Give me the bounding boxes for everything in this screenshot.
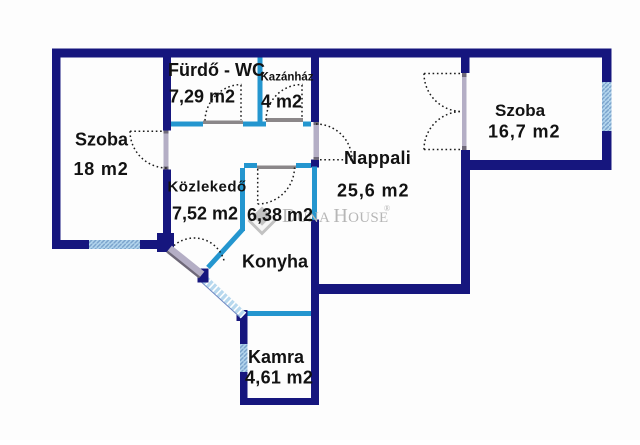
svg-text:18 m2: 18 m2	[74, 159, 129, 179]
svg-text:Konyha: Konyha	[242, 252, 309, 272]
svg-text:Nappali: Nappali	[344, 148, 411, 168]
svg-text:4,61 m2: 4,61 m2	[245, 368, 313, 388]
svg-text:6,38 m2: 6,38 m2	[247, 205, 313, 225]
svg-text:7,29 m2: 7,29 m2	[169, 87, 235, 107]
svg-text:Szoba: Szoba	[75, 130, 129, 150]
svg-text:16,7 m2: 16,7 m2	[488, 122, 560, 142]
svg-text:Kazánház: Kazánház	[261, 72, 314, 84]
svg-text:Kamra: Kamra	[248, 347, 305, 367]
svg-text:Fürdő - WC: Fürdő - WC	[168, 60, 265, 80]
svg-text:Közlekedő: Közlekedő	[168, 179, 247, 196]
svg-text:25,6 m2: 25,6 m2	[337, 181, 409, 201]
svg-text:4 m2: 4 m2	[261, 92, 302, 112]
svg-text:®: ®	[384, 204, 390, 213]
svg-text:7,52 m2: 7,52 m2	[172, 204, 238, 224]
svg-text:Szoba: Szoba	[495, 101, 546, 120]
